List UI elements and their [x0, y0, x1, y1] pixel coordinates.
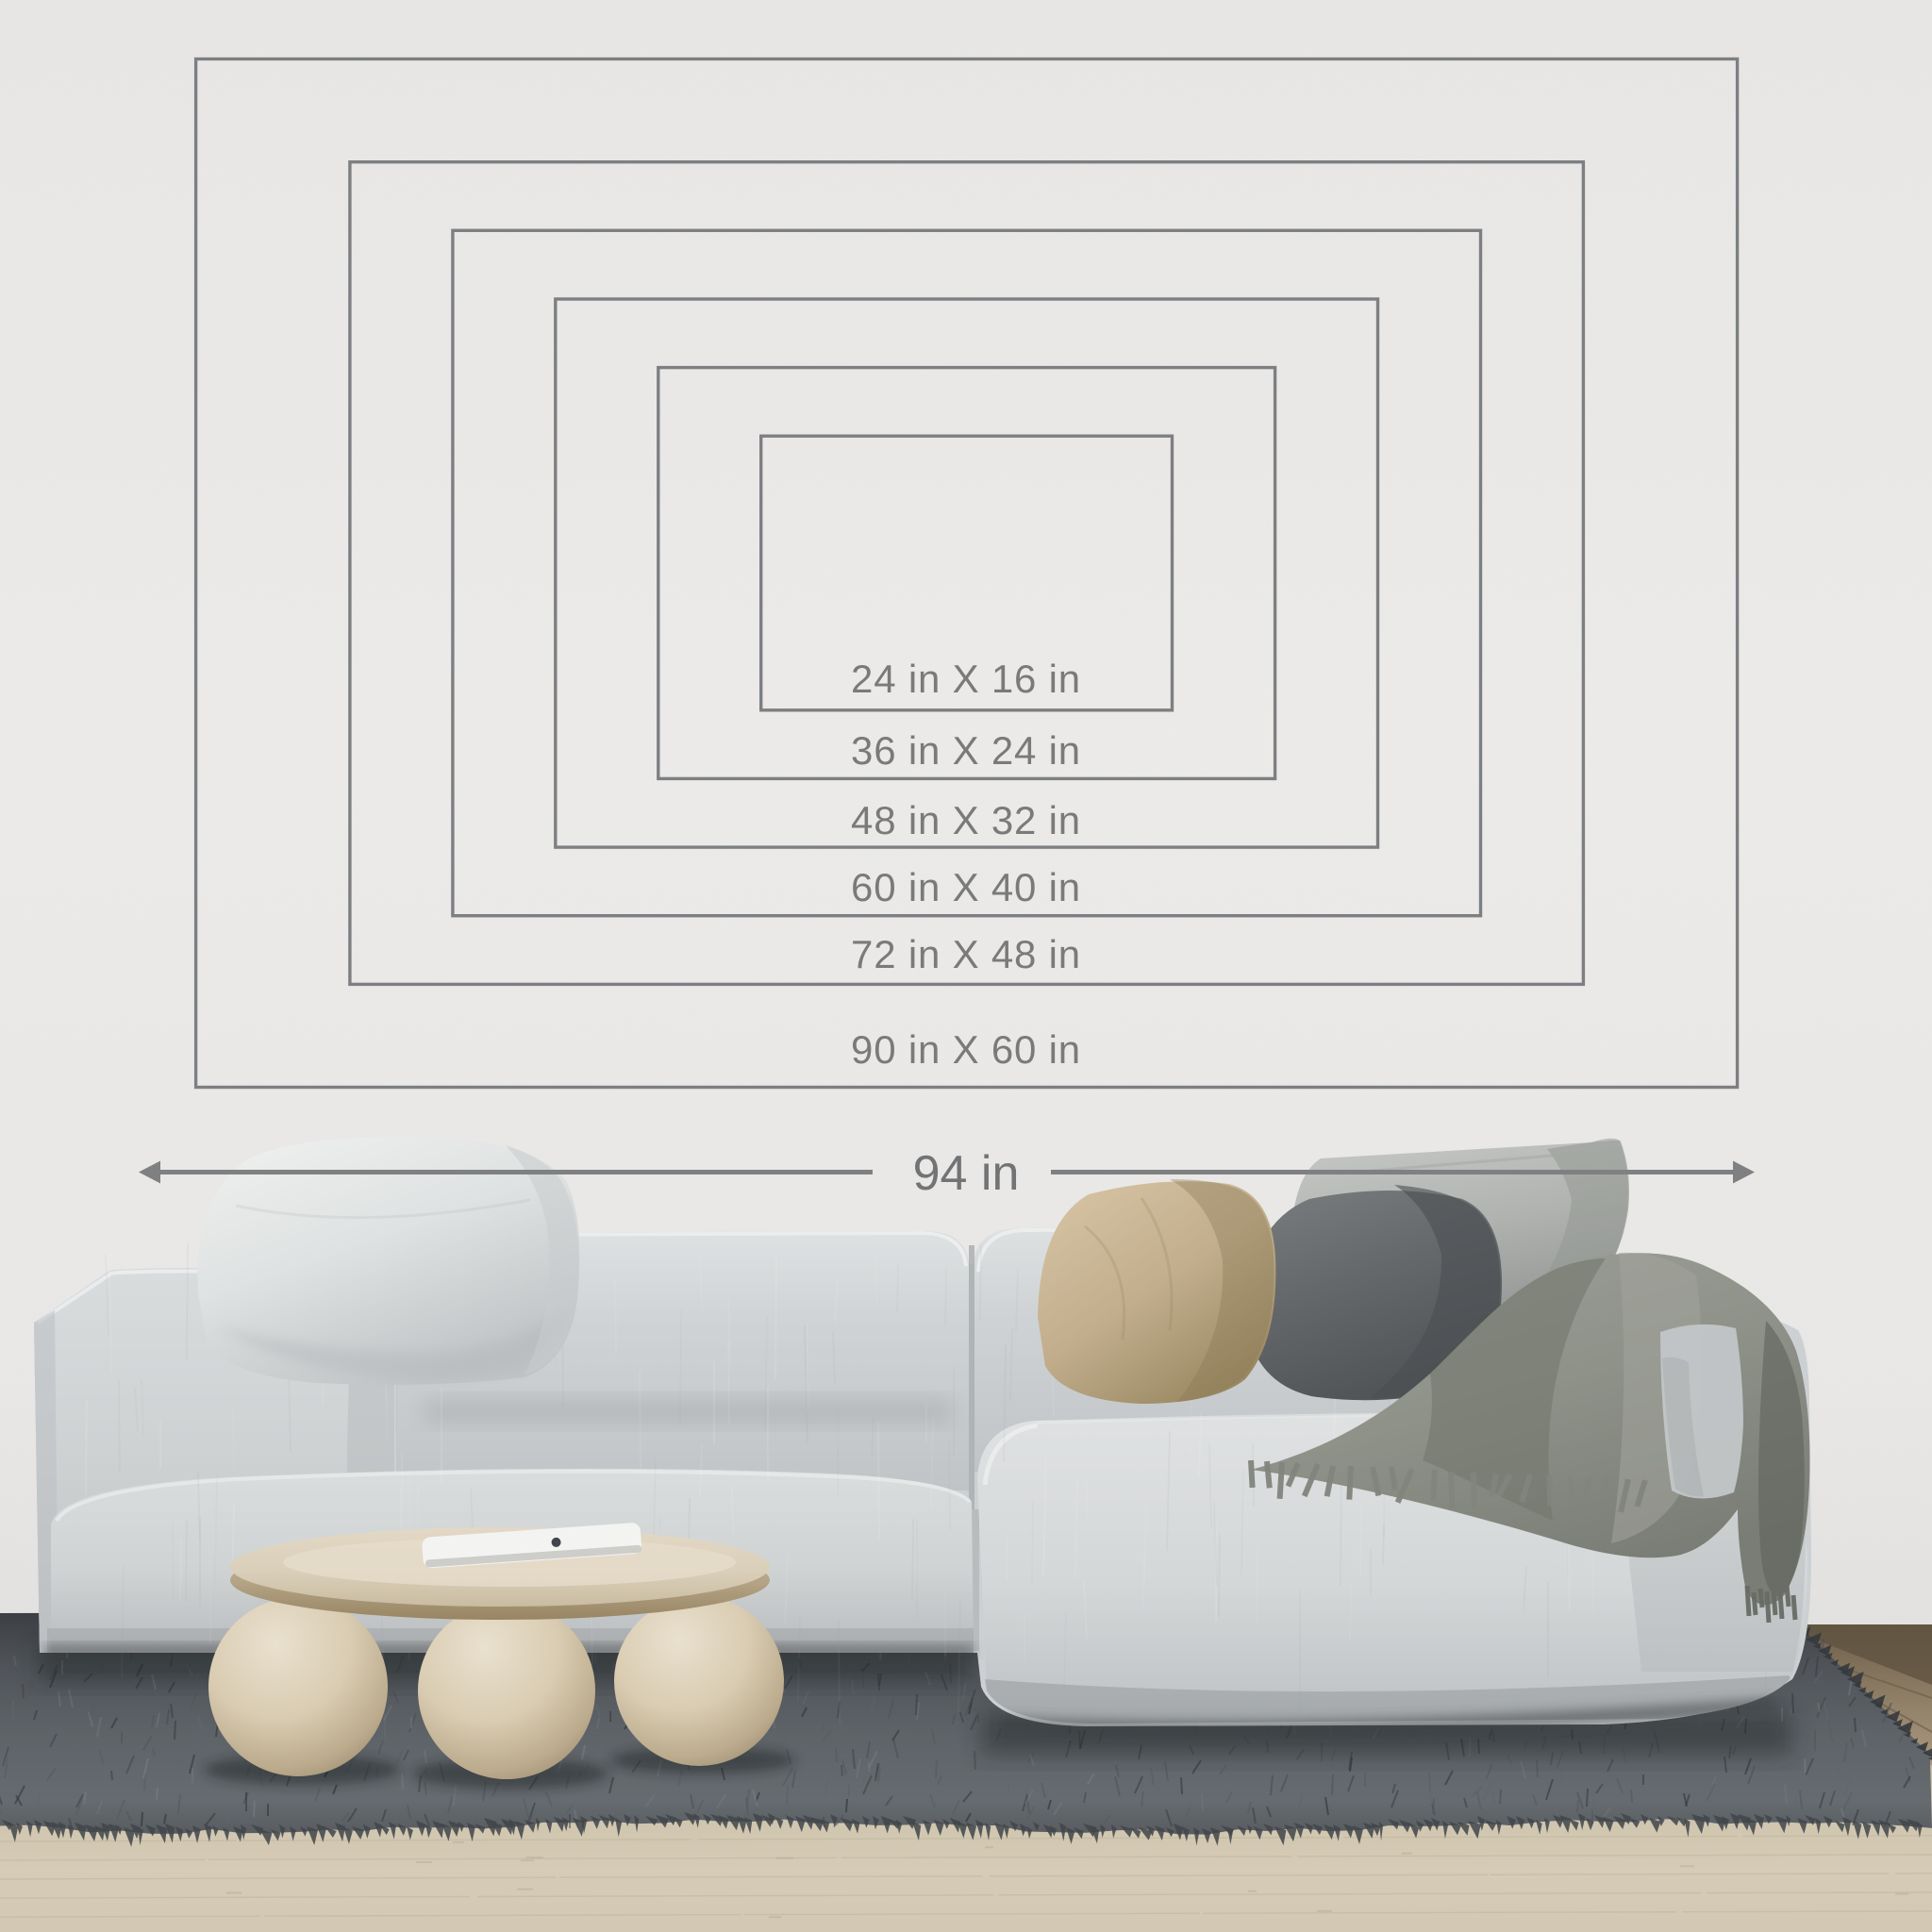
svg-text:36 in X 24 in: 36 in X 24 in	[851, 728, 1081, 773]
svg-text:48 in X 32 in: 48 in X 32 in	[851, 798, 1081, 842]
svg-text:90 in X 60 in: 90 in X 60 in	[851, 1027, 1081, 1072]
svg-text:72 in X 48 in: 72 in X 48 in	[851, 932, 1081, 976]
svg-text:94 in: 94 in	[913, 1146, 1020, 1201]
svg-text:60 in X 40 in: 60 in X 40 in	[851, 865, 1081, 909]
svg-text:24 in X 16 in: 24 in X 16 in	[851, 657, 1081, 701]
